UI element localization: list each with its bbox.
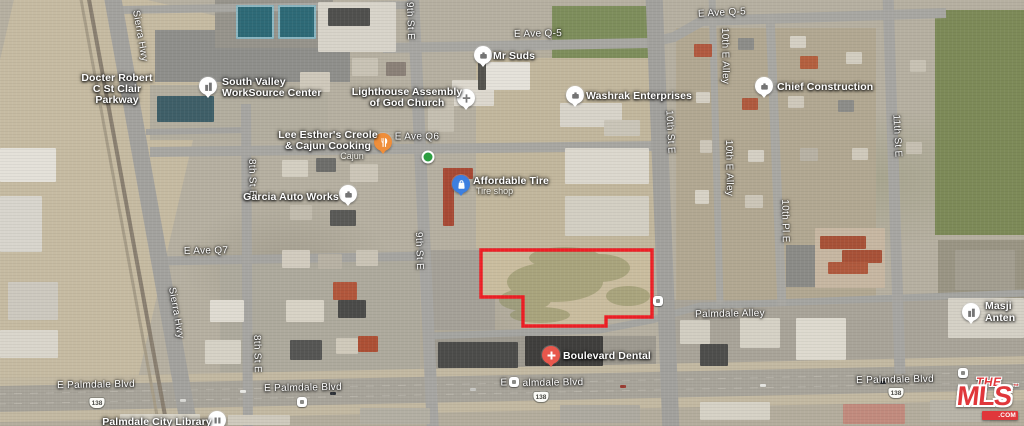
route-shield-138: 138 — [534, 392, 549, 402]
map-badge-icon[interactable] — [653, 296, 663, 306]
street-label: E Palmdale Blvd — [57, 379, 135, 391]
masjid-poi-label[interactable]: Anten — [985, 312, 1015, 324]
parcel-layer — [0, 0, 1024, 426]
generic-icon — [570, 90, 581, 101]
route-shield-138: 138 — [90, 398, 105, 408]
building-icon — [203, 81, 214, 92]
washrak-enterprises-marker[interactable] — [566, 86, 584, 104]
street-label: E Ave Q-5 — [514, 28, 562, 40]
garcia-auto-works-marker[interactable] — [339, 185, 357, 203]
mls-watermark-logo: THE MLS ™ .COM — [956, 373, 1022, 423]
map-badge-icon[interactable] — [297, 397, 307, 407]
street-label: Palmdale Alley — [695, 308, 765, 320]
south-valley-worksource-center-label[interactable]: WorkSource Center — [222, 87, 322, 99]
generic-icon — [759, 81, 770, 92]
mls-logo-tm: ™ — [1013, 384, 1019, 390]
washrak-enterprises-label[interactable]: Washrak Enterprises — [586, 90, 692, 102]
satellite-map[interactable]: Sierra HwySierra Hwy8th St E8th St E9th … — [0, 0, 1024, 426]
chief-construction-label[interactable]: Chief Construction — [777, 81, 873, 93]
boulevard-dental-marker[interactable] — [542, 346, 560, 364]
street-label: 10th Pl E — [779, 199, 791, 242]
street-label: 8th St E — [251, 335, 263, 373]
building-icon — [966, 307, 977, 318]
library-icon — [212, 415, 223, 426]
street-label: E Palmdale Blvd — [856, 374, 934, 386]
street-label: 10th St E — [663, 110, 676, 154]
south-valley-worksource-center-marker[interactable] — [199, 77, 217, 95]
street-label: 9th St E — [404, 2, 416, 40]
street-label: 10th E Alley — [719, 28, 731, 85]
street-label: almdale Blvd — [522, 377, 583, 389]
map-badge-icon[interactable] — [509, 377, 519, 387]
masjid-poi-label[interactable]: Masji — [985, 300, 1012, 312]
chief-construction-marker[interactable] — [755, 77, 773, 95]
lee-esthers-creole-cajun-cooking-category: Cajun — [340, 151, 364, 161]
route-shield-138: 138 — [889, 388, 904, 398]
generic-icon — [478, 50, 489, 61]
docter-robert-c-st-clair-parkway-label[interactable]: Parkway — [95, 94, 138, 106]
mls-logo-mls: MLS — [955, 381, 1012, 412]
masjid-poi-marker[interactable] — [962, 303, 980, 321]
street-label: E Ave Q6 — [395, 132, 439, 143]
lighthouse-assembly-of-god-church-label[interactable]: of God Church — [370, 97, 445, 109]
boulevard-dental-label[interactable]: Boulevard Dental — [563, 350, 651, 362]
mls-logo-com: .COM — [982, 411, 1018, 420]
affordable-tire-category: Tire shop — [476, 186, 513, 196]
street-label: 9th St E — [413, 232, 425, 270]
street-label: 10th E Alley — [723, 140, 735, 197]
street-label: E — [500, 377, 507, 388]
generic-icon — [343, 189, 354, 200]
palmdale-city-library-label[interactable]: Palmdale City Library — [102, 416, 211, 426]
affordable-tire-marker[interactable] — [452, 175, 470, 193]
garcia-auto-works-label[interactable]: Garcia Auto Works — [243, 191, 339, 203]
restaurant-icon — [378, 137, 389, 148]
mr-suds-label[interactable]: Mr Suds — [493, 50, 535, 62]
street-label: E Ave Q7 — [184, 245, 229, 257]
street-label: 11th St E — [890, 114, 903, 158]
mr-suds-marker[interactable] — [474, 46, 492, 64]
street-label: E Palmdale Blvd — [264, 382, 342, 394]
bag-icon — [456, 179, 467, 190]
map-point-marker[interactable] — [422, 151, 435, 164]
medical-icon — [546, 350, 557, 361]
